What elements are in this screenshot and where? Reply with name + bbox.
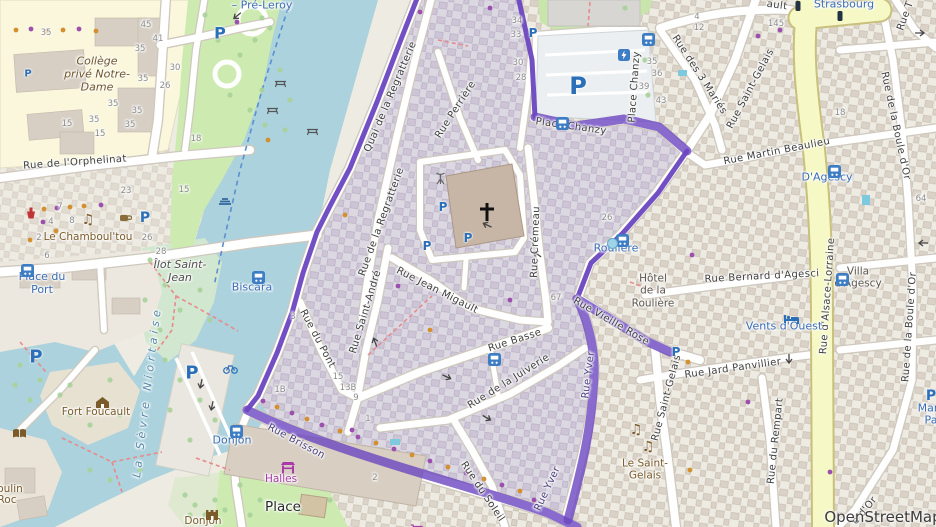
- parking-icon: P: [569, 72, 587, 100]
- house-number-2: 2: [372, 473, 377, 483]
- parking-icon: P: [423, 239, 432, 253]
- house-number-33: 33: [511, 30, 522, 40]
- house-number-3: 3: [290, 312, 295, 322]
- house-number-15: 15: [62, 119, 73, 129]
- house-number-15: 15: [95, 129, 106, 139]
- house-number-35: 35: [41, 28, 52, 38]
- house-number-1b: 1B: [274, 385, 285, 395]
- label-rue-yver: Rue Yver: [533, 465, 564, 513]
- label-le-saint-gelais: Le Saint- Gelais: [622, 458, 668, 483]
- house-number-145: 145: [768, 19, 784, 29]
- label-place: Place: [265, 500, 301, 516]
- label-villa-d-agescy: Villa d'Agescy: [834, 266, 881, 291]
- music-icon: ♫: [630, 422, 643, 438]
- house-number-45: 45: [141, 20, 152, 30]
- house-number-35: 35: [108, 99, 119, 109]
- house-number-64: 64: [916, 194, 927, 204]
- label-rouli-re: Roulière: [594, 243, 639, 256]
- label-place-chanzy: Place Chanzy: [627, 51, 644, 123]
- label-rue-de-la-juiverie: Rue de la Juiverie: [466, 352, 552, 412]
- map-canvas[interactable]: Rue de l'OrphelinatQuai de la Regratteri…: [0, 0, 936, 527]
- label-place-du-port: Place du Port: [19, 271, 66, 297]
- label-rue-t: Rue T: [895, 0, 916, 32]
- label-rue-du-pont: Rue du Pont: [297, 308, 338, 370]
- music-icon: ♫: [82, 212, 95, 228]
- house-number-26: 26: [602, 213, 613, 223]
- label-rue-jard-panvillier: Rue Jard Panvillier: [684, 356, 782, 381]
- label-halles: Halles: [265, 473, 297, 485]
- parking-icon: P: [29, 347, 42, 368]
- label-roc: Roc: [0, 494, 17, 506]
- house-number-30: 30: [513, 58, 524, 68]
- parking-icon: P: [185, 363, 198, 384]
- label-rue-de-la-boule-d-or: Rue de la Boule d'Or: [878, 71, 913, 181]
- label-coll-ge-priv-notre-dame: Collège privé Notre- Dame: [64, 56, 130, 95]
- label-rue-vieille-rose: Rue Vieille Rose: [571, 295, 651, 348]
- label-rue-saint-andr: Rue Saint-André: [348, 269, 385, 355]
- label-rue-basse: Rue Basse: [487, 327, 543, 355]
- label-rue-de-la-regratterie: Rue de la Regratterie: [357, 166, 407, 278]
- house-number-26: 26: [142, 233, 153, 243]
- label-donjon: Donjon: [213, 435, 252, 448]
- house-number-18: 18: [835, 108, 846, 118]
- label-place-chanzy: Place Chanzy: [535, 116, 607, 138]
- label-rue-d-alsace-lorraine: Rue d'Alsace-Lorraine: [818, 237, 838, 354]
- music-icon: ♫: [642, 439, 655, 455]
- label-vents-d-ouest: Vents d'Ouest: [746, 321, 822, 334]
- parking-icon: P: [672, 345, 681, 359]
- house-number-41: 41: [153, 34, 164, 44]
- label-rue-cr-meau: Rue Crémeau: [529, 206, 543, 278]
- house-number-7: 7: [57, 202, 62, 212]
- label-la-s-vre-niortaise: La Sèvre Niortaise: [131, 306, 165, 479]
- label-rue-martin-beaulieu: Rue Martin Beaulieu: [723, 136, 832, 168]
- label-lot-saint-jean: Îlot Saint- Jean: [154, 259, 207, 285]
- parking-icon: P: [24, 69, 31, 80]
- label-rue-saint-gelais: Rue Saint-Gelais: [725, 47, 777, 131]
- house-number-67: 67: [551, 293, 562, 303]
- label-rue-saint-gelais: Rue Saint-Gelais: [650, 354, 684, 443]
- house-number-9: 9: [353, 393, 358, 403]
- label-oulin: oulin: [0, 483, 23, 495]
- house-number-43: 43: [656, 96, 667, 106]
- house-number-15: 15: [333, 372, 344, 382]
- label-quai-de-la-regratterie: Quai de la Regratterie: [362, 40, 419, 154]
- house-number-35: 35: [647, 57, 658, 67]
- label-rue-perri-re: Rue Perrière: [433, 79, 479, 141]
- label-rue-bernard-d-agesci: Rue Bernard d'Agesci: [704, 268, 819, 286]
- label-ault: ault: [766, 0, 788, 13]
- house-number-18: 18: [191, 134, 202, 144]
- label-e-d-or: e d'Or: [850, 495, 880, 527]
- label-d-agescy: D'Agescy: [801, 172, 852, 185]
- label-h-tel-de-la-rouli-re: Hôtel de la Roulière: [632, 272, 675, 309]
- house-number-12: 12: [694, 23, 705, 33]
- parking-icon: P: [140, 210, 150, 226]
- map-label-layer: Rue de l'OrphelinatQuai de la Regratteri…: [0, 0, 936, 527]
- label-mar: Mar: [918, 403, 936, 416]
- house-number-35: 35: [138, 74, 149, 84]
- house-number-35: 35: [132, 106, 143, 116]
- label-strasbourg: Strasbourg: [814, 0, 874, 11]
- label-rue-brisson: Rue Brisson: [265, 422, 326, 462]
- house-number-13b: 13B: [340, 383, 357, 393]
- house-number-39: 39: [639, 82, 650, 92]
- house-number-26: 26: [160, 81, 171, 91]
- parking-icon: P: [439, 200, 448, 214]
- house-number-23: 23: [121, 186, 132, 196]
- house-number-2: 2: [36, 233, 41, 243]
- house-number-15: 15: [179, 185, 190, 195]
- house-number-34: 34: [512, 16, 523, 26]
- house-number-36: 36: [652, 69, 663, 79]
- label-rue-yver: Rue Yver: [580, 351, 598, 400]
- label-biscara: Biscara: [232, 282, 272, 295]
- label-rue-du-soleil: Rue du Soleil: [457, 460, 506, 525]
- parking-icon: P: [214, 24, 226, 43]
- label-pr-leroy: – Pré-Leroy: [232, 0, 293, 12]
- house-number-8: 8: [69, 216, 74, 226]
- house-number-35: 35: [135, 44, 146, 54]
- house-number-28: 28: [516, 73, 527, 83]
- house-number-4: 4: [48, 217, 53, 227]
- parking-icon: P: [926, 388, 936, 404]
- house-number-35: 35: [89, 115, 100, 125]
- label-rue-de-l-orphelinat: Rue de l'Orphelinat: [23, 153, 127, 172]
- house-number-28: 28: [156, 247, 167, 257]
- label-pa: Pa: [925, 415, 936, 428]
- label-le-chamboul-tou: Le Chamboul'tou: [44, 231, 133, 243]
- house-number-30: 30: [170, 63, 181, 73]
- label-rue-des-3-mari-s: Rue des 3 Mariés: [669, 33, 729, 117]
- parking-icon: P: [529, 26, 538, 40]
- label-donjon: Donjon: [184, 515, 221, 527]
- label-rue-de-la-boule-d-or: Rue de la Boule d'Or: [900, 272, 919, 383]
- house-number-1: 1: [365, 414, 370, 424]
- label-rue-du-rempart: Rue du Rempart: [766, 397, 787, 484]
- label-rue-jean-migault: Rue Jean Migault: [394, 265, 480, 316]
- parking-icon: P: [464, 231, 473, 245]
- house-number-6: 6: [44, 251, 49, 261]
- label-fort-foucault: Fort Foucault: [62, 406, 131, 418]
- house-number-4: 4: [694, 12, 699, 22]
- house-number-35: 35: [125, 120, 136, 130]
